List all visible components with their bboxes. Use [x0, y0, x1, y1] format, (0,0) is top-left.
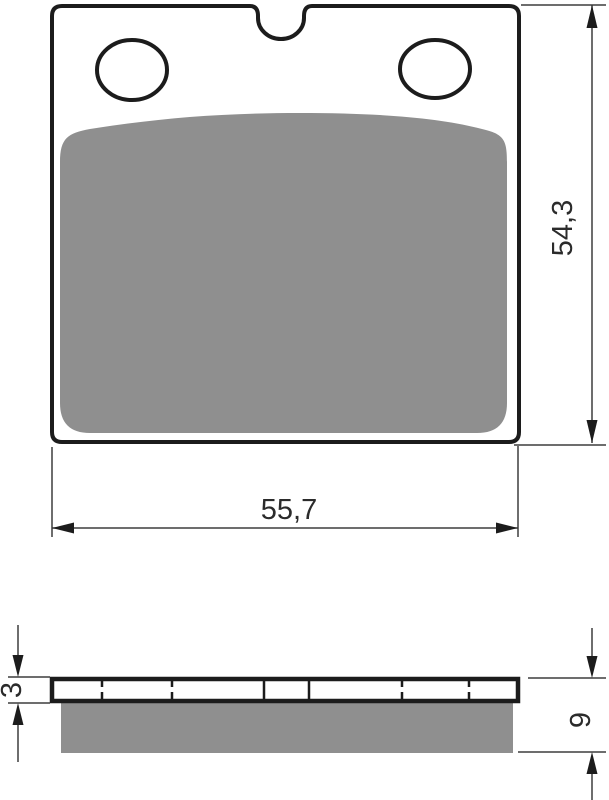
top-view: 55,7 54,3: [52, 5, 606, 537]
plate-thickness-label: 3: [0, 682, 28, 698]
arrow-up-icon: [587, 752, 598, 774]
side-view: 3 9: [0, 625, 606, 800]
width-dimension-label: 55,7: [261, 494, 317, 526]
height-dimension: 54,3: [514, 5, 606, 445]
friction-material-top-view: [60, 113, 507, 433]
mounting-hole-right: [400, 40, 470, 98]
arrow-down-icon: [13, 655, 24, 677]
technical-drawing-page: 55,7 54,3: [0, 0, 609, 800]
technical-drawing-canvas: 55,7 54,3: [0, 0, 609, 800]
arrow-right-icon: [496, 523, 518, 534]
total-thickness-dimension: 9: [518, 628, 606, 800]
arrow-left-icon: [52, 523, 74, 534]
total-thickness-label: 9: [565, 712, 597, 728]
arrow-down-icon: [587, 420, 598, 443]
backing-plate-side: [52, 679, 518, 701]
mounting-hole-left: [97, 40, 167, 100]
arrow-down-icon: [587, 656, 598, 678]
arrow-up-icon: [587, 5, 598, 28]
width-dimension: 55,7: [52, 446, 518, 537]
plate-thickness-dimension: 3: [0, 625, 50, 762]
arrow-up-icon: [13, 703, 24, 725]
height-dimension-label: 54,3: [547, 200, 579, 256]
friction-material-side: [61, 702, 513, 753]
